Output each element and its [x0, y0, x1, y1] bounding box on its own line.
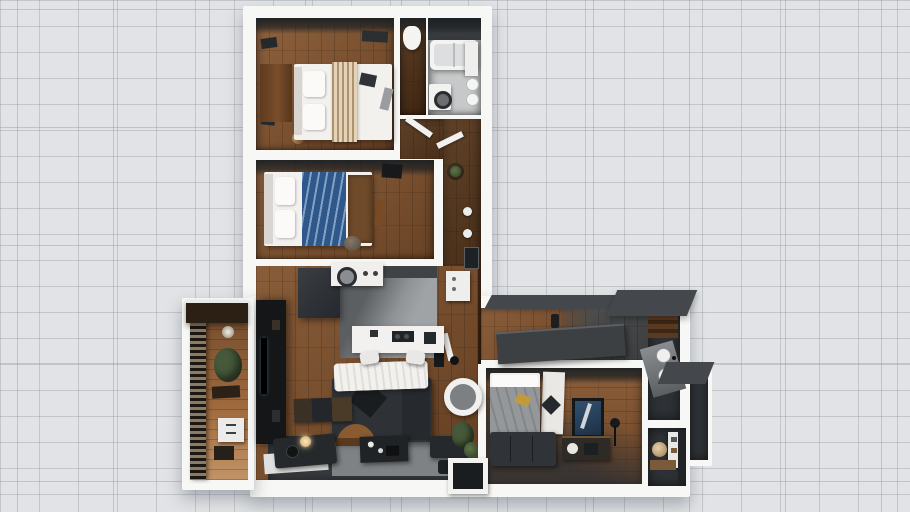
table-box — [386, 445, 399, 455]
double-bed — [264, 172, 372, 246]
double-bed — [294, 64, 392, 140]
washer-door — [434, 91, 452, 109]
drawer-handle — [226, 432, 236, 434]
open-door-leaf — [405, 116, 433, 138]
room-powder — [648, 428, 686, 486]
artwork-streak — [580, 403, 592, 429]
wardrobe — [260, 64, 292, 122]
bar-stool — [359, 350, 380, 366]
room-extension — [690, 372, 708, 460]
round-pillow — [285, 445, 299, 459]
console-box — [584, 443, 598, 455]
media-wall — [256, 300, 286, 444]
room-bathroom — [428, 18, 481, 115]
headboard — [264, 174, 273, 244]
pillow — [303, 71, 325, 97]
dark-wall-band — [428, 18, 481, 40]
dark-box — [214, 446, 234, 460]
dark-door — [678, 430, 685, 482]
kitchen-island — [352, 326, 444, 353]
sink-bowl — [466, 93, 479, 106]
wall-light — [222, 326, 234, 338]
drawer-handle — [226, 424, 236, 426]
beige-throw — [332, 62, 357, 142]
blue-duvet — [302, 172, 346, 246]
toilet — [403, 26, 421, 50]
room-bedroom-1 — [256, 18, 394, 150]
vanity-shelf — [650, 460, 676, 470]
cabinet-knob — [452, 277, 456, 281]
round-sink — [656, 348, 671, 363]
room-bedroom-3 — [486, 368, 642, 484]
appliance-drum — [337, 267, 357, 287]
shelf-item — [671, 448, 677, 453]
picture-frame — [464, 247, 479, 269]
table-lamp-glow — [300, 436, 311, 447]
ceiling-vent — [362, 30, 389, 42]
gray-duvet — [490, 387, 540, 437]
sink-bowl — [466, 78, 479, 91]
plate-decor — [567, 443, 578, 454]
pillow — [275, 210, 295, 238]
white-cabinet — [446, 271, 470, 301]
bath-cabinet — [465, 42, 478, 76]
leaning-frames — [294, 397, 353, 423]
burner — [404, 334, 409, 339]
room-wc — [400, 18, 426, 115]
plant — [464, 442, 478, 458]
foot-bench — [348, 175, 372, 243]
island-item — [424, 332, 436, 344]
pillow — [275, 177, 295, 205]
shelf-item — [272, 410, 280, 422]
tv-screen — [261, 338, 267, 394]
burner — [395, 334, 400, 339]
round-mirror — [652, 442, 667, 457]
wall-light — [463, 207, 472, 216]
shelf-item — [272, 320, 280, 330]
tv — [382, 163, 403, 178]
wall-shelf — [374, 200, 384, 227]
desk-lamp-stem — [614, 426, 616, 446]
roof-panel — [607, 290, 698, 316]
island-item — [370, 330, 378, 337]
wall-art — [260, 37, 277, 49]
blue-artwork — [572, 398, 604, 438]
plant — [214, 348, 242, 382]
cooktop — [392, 331, 414, 342]
shelf-item — [671, 437, 677, 442]
plant — [450, 166, 461, 177]
white-appliance — [331, 263, 383, 286]
wall-light — [463, 229, 472, 238]
floor-plan-canvas — [0, 0, 910, 512]
pillow-row — [492, 375, 538, 387]
railing — [190, 320, 206, 480]
pillow — [303, 104, 325, 130]
console — [562, 436, 610, 460]
candle — [368, 441, 374, 447]
decor-bottle — [551, 314, 559, 328]
candle — [378, 448, 383, 453]
bathtub-divider — [453, 43, 455, 67]
appliance-knob — [363, 271, 368, 276]
headboard — [294, 67, 302, 135]
roof-panel — [484, 295, 623, 309]
pouf — [344, 236, 361, 251]
laptop-tray — [359, 72, 377, 87]
room-bedroom-2 — [256, 160, 434, 259]
decor-ball — [450, 356, 459, 365]
sofa-seam — [532, 436, 533, 462]
sofa-white-throw — [334, 360, 429, 391]
appliance-knob — [373, 271, 378, 276]
awning — [186, 300, 248, 323]
room-balcony — [186, 300, 248, 482]
floor-lamp — [444, 378, 482, 416]
cabinet-knob — [452, 287, 456, 291]
bar-stool — [405, 350, 426, 366]
coffee-table — [360, 435, 409, 463]
bedroom-sofa — [490, 432, 556, 466]
bench — [212, 385, 241, 398]
dark-counter — [384, 266, 437, 278]
double-bed — [490, 373, 540, 437]
sofa-seam — [510, 436, 511, 462]
doormat-box — [448, 458, 488, 494]
faucet-dot — [672, 356, 676, 360]
washing-machine — [429, 84, 451, 110]
roof-panel — [658, 362, 715, 384]
drawer-unit — [218, 418, 244, 442]
